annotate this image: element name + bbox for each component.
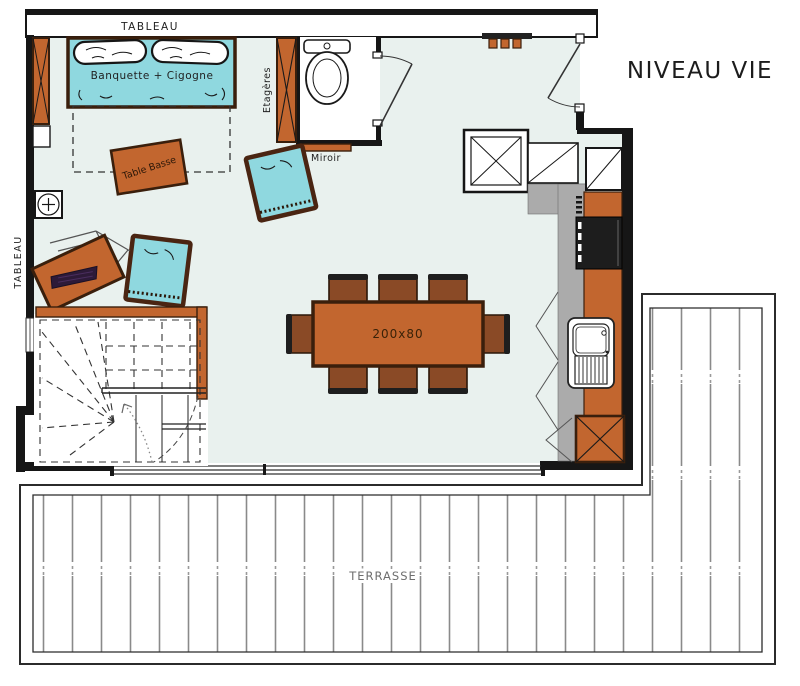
armchair-2 [125,236,190,307]
armchair-1 [246,145,317,220]
pillow [74,40,147,64]
mirror-label: Miroir [311,153,341,164]
stairs [34,307,208,466]
toilet [304,40,350,104]
banquette-label: Banquette + Cigogne [91,70,214,82]
left-wall-mid [26,352,34,408]
sink [568,318,614,388]
stair-rail-right [197,307,207,399]
wardrobe [33,38,50,147]
dining-chair [428,274,468,303]
top-wall-outer-edge [26,10,597,15]
floor-plan: TERRASSE TABLEAU TABLEAU [0,0,800,686]
dining-table-label: 200x80 [372,327,423,341]
dining-chair [328,365,368,394]
mirror [301,144,351,151]
dining-chair [378,365,418,394]
dining-chair [378,274,418,303]
floor-plan-page: TERRASSE TABLEAU TABLEAU [0,0,800,686]
dining-chair [328,274,368,303]
page-title: NIVEAU VIE [627,58,773,84]
pillow [152,40,229,65]
banquette: Banquette + Cigogne [68,38,235,107]
cooktop [576,217,622,269]
tall-cabinet [576,416,624,462]
fridge [464,130,528,192]
tableau-top-label: TABLEAU [120,21,179,33]
entry-wall-piece [576,112,584,130]
column-post [35,191,62,218]
dining-chair [428,365,468,394]
wc-door-jamb-top [373,52,382,58]
tableau-left-label: TABLEAU [13,235,24,289]
dining-chair [481,314,510,354]
dining-chair [286,314,315,354]
terrace-label: TERRASSE [348,569,417,583]
stair-rail-top [36,307,206,317]
shelves-label: Etagères [262,67,273,113]
coffee-table: Table Basse [111,140,187,194]
